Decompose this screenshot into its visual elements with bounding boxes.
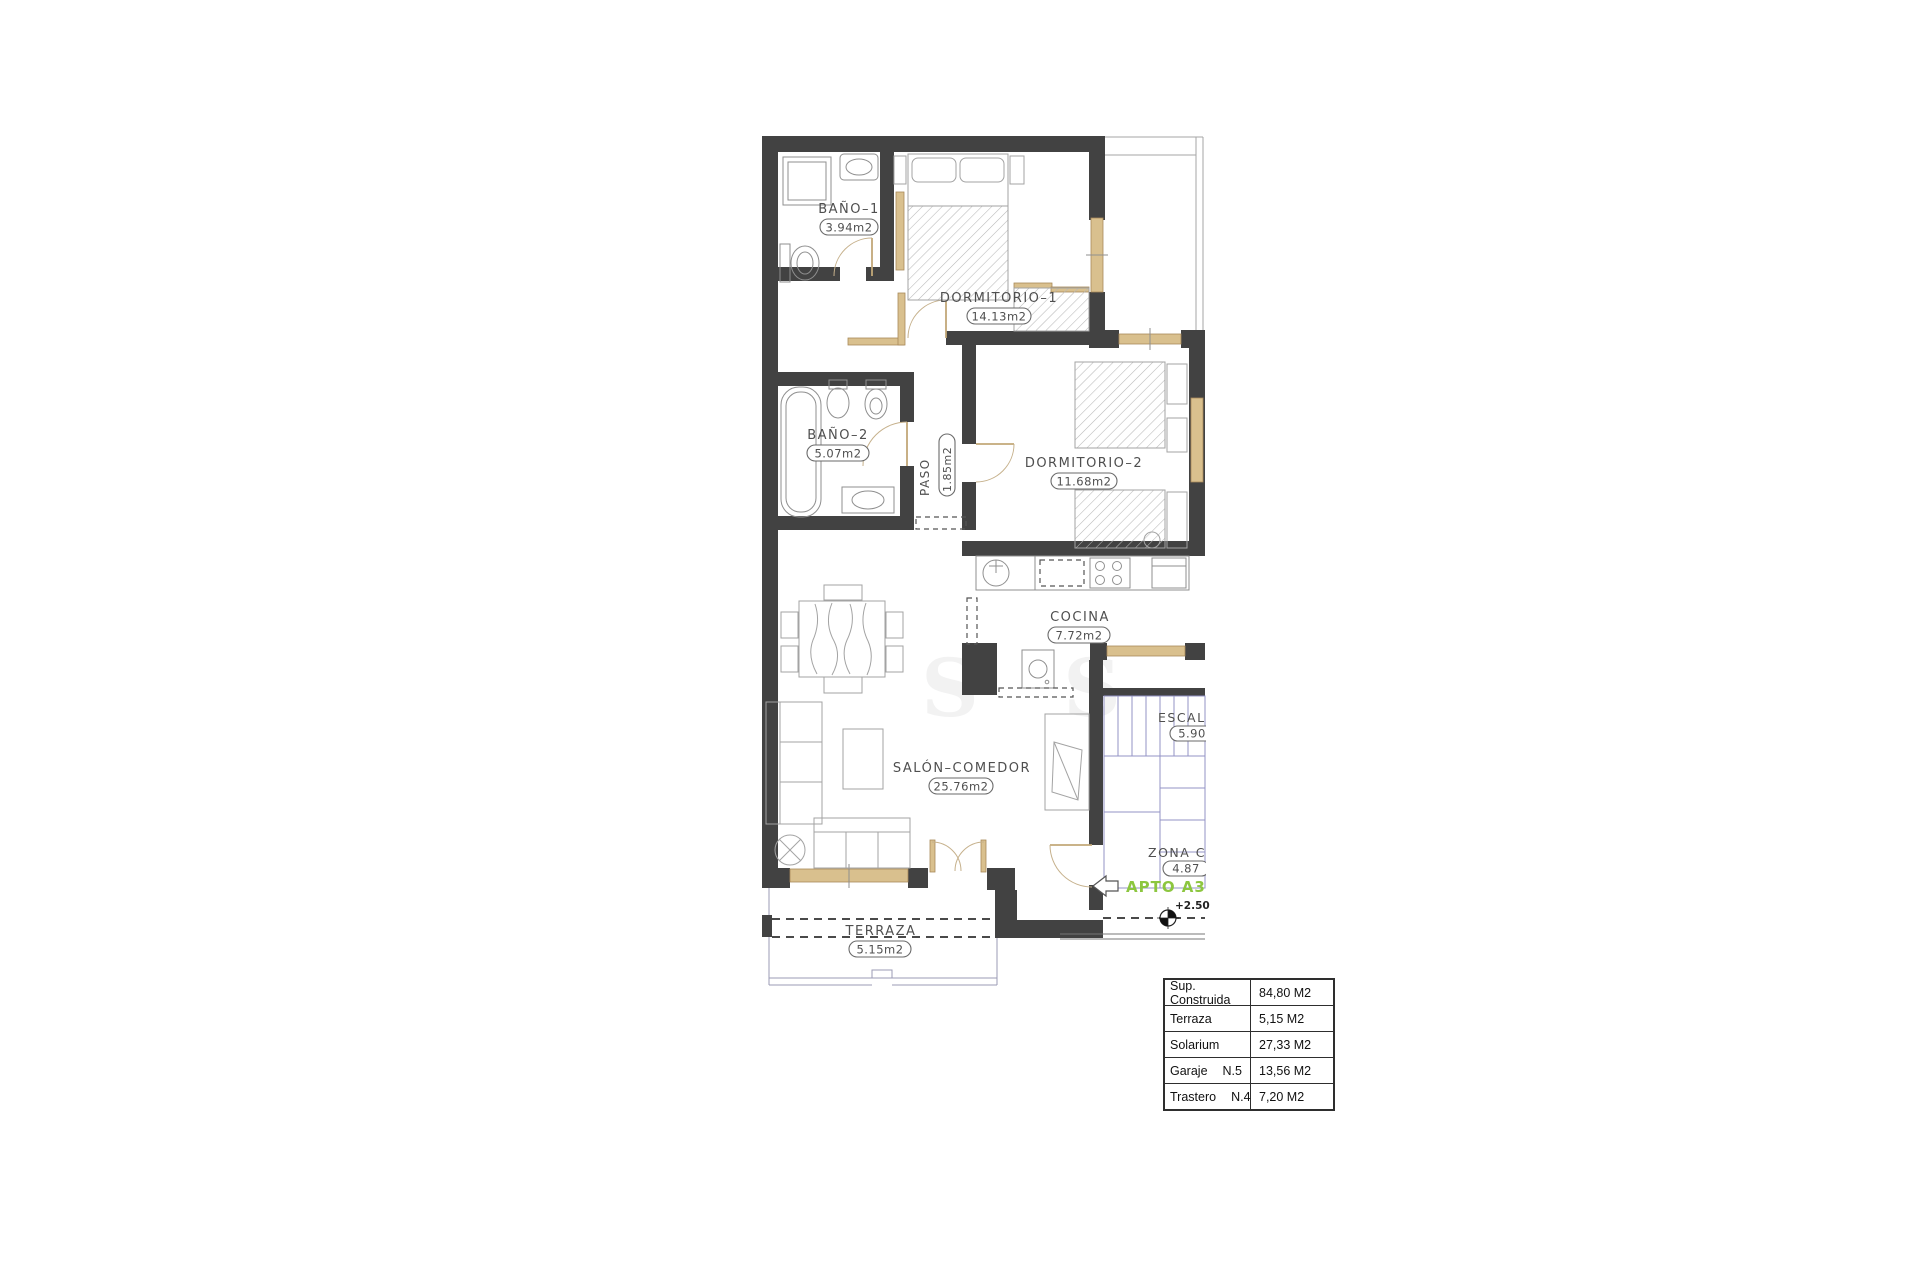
- svg-text:11.68m2: 11.68m2: [1057, 475, 1112, 489]
- bedroom2-furniture: [1075, 362, 1187, 548]
- chair: [781, 646, 798, 672]
- room-label-escalera: ESCAL: [1158, 710, 1206, 725]
- table-row: TrasteroN.4 7,20 M2: [1165, 1083, 1333, 1109]
- fridge-icon: [1152, 558, 1186, 588]
- area-summary-table: Sup. Construida 84,80 M2 Terraza 5,15 M2…: [1163, 978, 1335, 1111]
- closet-door-hall: [896, 192, 904, 270]
- room-label-cocina: COCINA: [1050, 610, 1110, 625]
- window-dorm2-right: [1191, 398, 1203, 482]
- single-bed-2: [1075, 490, 1165, 548]
- closet-door-hall-3: [898, 293, 905, 345]
- chair: [824, 585, 862, 600]
- window-kitchen: [1107, 646, 1185, 656]
- counter: [976, 556, 1189, 590]
- solarium-outline: [1105, 137, 1203, 330]
- apartment-label: APTO A3: [1126, 878, 1206, 896]
- svg-text:25.76m2: 25.76m2: [934, 780, 989, 794]
- dashed-lines: [772, 918, 1205, 939]
- table-row: Terraza 5,15 M2: [1165, 1005, 1333, 1031]
- chair: [824, 677, 862, 693]
- hob-icon: [1090, 558, 1130, 588]
- room-label-bano1: BAÑO–1: [818, 201, 880, 217]
- apartment-tag: APTO A3: [1093, 876, 1206, 896]
- table-row: Sup. Construida 84,80 M2: [1165, 980, 1333, 1005]
- sofa-bottom: [814, 818, 910, 868]
- room-label-dormitorio1: DORMITORIO–1: [940, 291, 1058, 306]
- table-row: GarajeN.5 13,56 M2: [1165, 1057, 1333, 1083]
- svg-text:5.07m2: 5.07m2: [814, 447, 861, 461]
- dining-table: [799, 601, 885, 677]
- svg-text:1.85m2: 1.85m2: [941, 447, 954, 492]
- single-bed-1: [1075, 362, 1165, 448]
- closet-door-hall-2: [848, 338, 904, 345]
- sheet-edge-mask: [1206, 560, 1920, 955]
- room-label-paso: PASO: [918, 458, 932, 496]
- chair: [781, 612, 798, 638]
- nightstand: [894, 156, 906, 184]
- room-label-dormitorio2: DORMITORIO–2: [1025, 456, 1143, 471]
- tv-icon: [1052, 742, 1082, 800]
- level-marker: +2.50: [1157, 900, 1210, 929]
- floor-plan-drawing: S S: [0, 0, 1920, 1280]
- nightstand: [1010, 156, 1024, 184]
- nightstand: [1167, 418, 1187, 452]
- shower-icon: [783, 157, 831, 205]
- room-labels: BAÑO–1 3.94m2 DORMITORIO–1 14.13m2 BAÑO–…: [807, 201, 1216, 957]
- headboard: [1167, 492, 1187, 548]
- svg-text:3.94m2: 3.94m2: [825, 221, 872, 235]
- chair: [886, 646, 903, 672]
- svg-text:4.87: 4.87: [1172, 862, 1200, 876]
- headboard: [1167, 364, 1187, 404]
- coffee-table: [843, 729, 883, 789]
- svg-text:5.15m2: 5.15m2: [856, 943, 903, 957]
- room-label-zona-comun: ZONA C: [1148, 845, 1206, 860]
- level-value: +2.50: [1175, 900, 1210, 912]
- chair: [886, 612, 903, 638]
- room-label-salon: SALÓN–COMEDOR: [893, 760, 1031, 776]
- table-row: Solarium 27,33 M2: [1165, 1031, 1333, 1057]
- room-label-terraza: TERRAZA: [845, 924, 917, 939]
- bathroom1-fixtures: [780, 154, 878, 282]
- svg-text:14.13m2: 14.13m2: [972, 310, 1027, 324]
- svg-text:5.90: 5.90: [1178, 727, 1206, 741]
- svg-text:7.72m2: 7.72m2: [1055, 629, 1102, 643]
- room-label-bano2: BAÑO–2: [807, 427, 869, 443]
- wardrobe-slider-1: [1014, 283, 1052, 288]
